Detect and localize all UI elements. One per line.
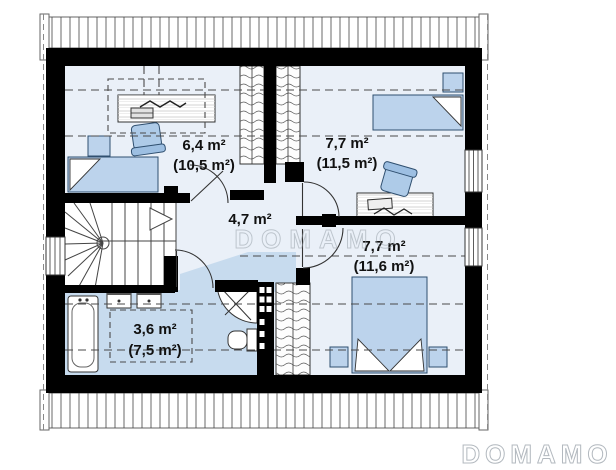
- window-right-bedroom: [465, 228, 482, 266]
- wall-stub-bottom: [164, 256, 178, 292]
- wall-shower-north: [215, 280, 258, 292]
- label-bedroom-total: (11,6 m²): [354, 258, 415, 275]
- watermark: DOMAMO: [234, 224, 403, 254]
- wall-room1-south-east: [230, 190, 264, 200]
- wall-right: [465, 48, 482, 393]
- wall-door-post: [285, 162, 304, 182]
- wall-bathroom-north: [46, 285, 175, 293]
- roof-hatch-bottom: [40, 390, 488, 430]
- brand-logo: DOMAMO: [461, 439, 612, 469]
- wardrobe-top-left: [240, 66, 264, 164]
- wardrobe-bedroom: [276, 283, 310, 375]
- toilet: [228, 329, 257, 351]
- label-room2-total: (11,5 m²): [317, 155, 378, 172]
- label-room1-area: 6,4 m²: [182, 137, 225, 154]
- floor-plan-page: 6,4 m² (10,5 m²) 7,7 m² (11,5 m²) 4,7 m²…: [0, 0, 616, 470]
- duct-chimney: [257, 282, 274, 375]
- floor-plan-canvas: 6,4 m² (10,5 m²) 7,7 m² (11,5 m²) 4,7 m²…: [0, 0, 616, 470]
- wall-stub-top: [164, 186, 178, 195]
- nightstand: [88, 136, 110, 156]
- nightstand: [443, 73, 463, 92]
- bathtub-faucet2: [85, 298, 88, 301]
- wardrobe-top-right: [276, 66, 300, 164]
- label-bathroom-total: (7,5 m²): [128, 342, 181, 359]
- window-left-stairs: [46, 237, 65, 275]
- wall-hall-se: [296, 268, 310, 285]
- wall-divider-top-rooms: [264, 66, 276, 183]
- window-right-room2: [465, 150, 482, 192]
- laptop: [368, 198, 393, 210]
- label-room1-total: (10,5 m²): [173, 157, 235, 174]
- wall-bottom: [46, 375, 482, 393]
- wall-left: [46, 48, 65, 393]
- wall-top: [46, 48, 482, 66]
- label-room2-area: 7,7 m²: [325, 135, 368, 152]
- label-bathroom-area: 3,6 m²: [133, 321, 176, 338]
- bathtub-faucet: [78, 298, 81, 301]
